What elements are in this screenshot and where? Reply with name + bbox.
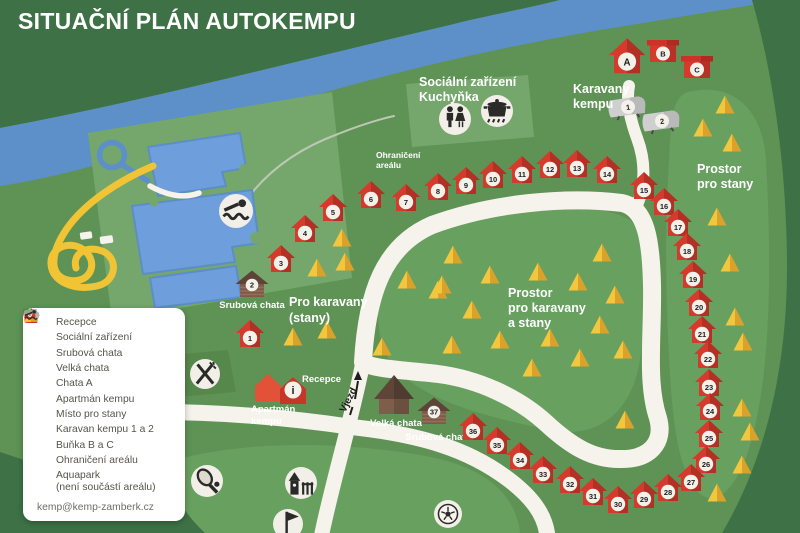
karavany-label-line2: kempu [573, 97, 613, 111]
marker-text: 8 [436, 187, 440, 196]
legend-item: Velká chata [35, 363, 177, 375]
marker-text: 31 [589, 492, 597, 501]
prostor-stany-label-line1: Prostor [697, 162, 742, 176]
utensils-icon [190, 359, 220, 389]
legend-item: Karavan kempu 1 a 2 [35, 424, 177, 436]
legend-item-label: Místo pro stany [56, 409, 126, 421]
marker-text: 15 [640, 186, 648, 195]
pro-karavany-label-line1: Pro karavany [289, 295, 368, 309]
legend-items: RecepceSociální zařízeníSrubová chataVel… [35, 317, 177, 495]
marker-text: 1 [248, 334, 252, 343]
marker-text: 19 [689, 275, 697, 284]
prostor-karavany-label-line3: a stany [508, 316, 551, 330]
marker-text: 23 [705, 383, 713, 392]
marker-text: 12 [546, 165, 554, 174]
legend-item: Sociální zařízení [35, 332, 177, 344]
marker-text: 22 [704, 355, 712, 364]
apartman-label-line1: Apartmán [251, 404, 296, 415]
prostor-karavany-label-line2: pro karavany [508, 301, 586, 315]
social-label-line1: Sociální zařízení [419, 75, 517, 89]
amenity-circle [439, 103, 471, 135]
legend-item: Buňka B a C [35, 440, 177, 452]
marker-text: Srubová chata [219, 300, 285, 311]
marker-text: 28 [664, 488, 672, 497]
social-label-line2: Kuchyňka [419, 90, 480, 104]
marker-text: A [623, 57, 630, 68]
marker-text: 14 [603, 170, 612, 179]
karavany-label-line1: Karavany [573, 82, 629, 96]
marker-text: 3 [279, 259, 283, 268]
marker-text: 6 [369, 195, 373, 204]
legend-item-label: Velká chata [56, 363, 109, 375]
soccer-icon [434, 500, 462, 528]
legend-item-label: Karavan kempu 1 a 2 [56, 424, 154, 436]
amenity-circle [219, 194, 253, 228]
marker-text: 2 [250, 281, 254, 290]
marker-text: 37 [430, 408, 438, 417]
marker-text: B [660, 49, 666, 58]
playground-icon [285, 467, 317, 499]
apartman-label-line2: kempu [251, 416, 282, 427]
legend-item: Chata A [35, 378, 177, 390]
prostor-stany-label-line2: pro stany [697, 177, 753, 191]
legend-item: Ohraničení areálu [35, 455, 177, 467]
legend-item-label: Buňka B a C [56, 440, 114, 452]
marker-text: 33 [539, 470, 547, 479]
marker-text: 5 [331, 208, 335, 217]
soccer-glyph [438, 504, 457, 523]
marker-text: 34 [516, 456, 525, 465]
legend-item: Srubová chata [35, 348, 177, 360]
legend-item: Místo pro stany [35, 409, 177, 421]
legend-item-label: Ohraničení areálu [56, 455, 138, 467]
marker-text: 13 [573, 164, 581, 173]
info-icon: i [291, 385, 294, 397]
marker-text: 9 [464, 181, 468, 190]
boundary-label-line1: Ohraničení [376, 150, 421, 160]
marker-text: 16 [660, 202, 668, 211]
legend-item-label: Srubová chata [56, 348, 122, 360]
recepce-label: Recepce [302, 374, 341, 385]
bunka-C: C [681, 56, 713, 78]
marker-text: Velká chata [370, 418, 422, 429]
marker-text: 27 [687, 478, 695, 487]
legend-item: Recepce [35, 317, 177, 329]
marker-text: 32 [566, 480, 574, 489]
marker-text: 17 [674, 223, 682, 232]
prostor-karavany-label-line1: Prostor [508, 286, 553, 300]
marker-text: 18 [683, 247, 691, 256]
tennis-icon [191, 465, 223, 497]
swimmer-icon [219, 194, 253, 228]
wc-icon [439, 103, 471, 135]
marker-text: 11 [518, 170, 526, 179]
legend-email: kemp@kemp-zamberk.cz [35, 502, 177, 513]
pot-icon [481, 95, 513, 127]
marker-text: 35 [493, 441, 501, 450]
marker-text: 36 [469, 427, 477, 436]
legend-item: Aquapark(není součástí areálu) [35, 470, 177, 494]
marker-text: 29 [640, 495, 648, 504]
marker-text: 30 [614, 500, 622, 509]
marker-text: 24 [706, 407, 715, 416]
legend-item-label: Aquapark(není součástí areálu) [56, 470, 156, 494]
legend-item-label: Apartmán kempu [56, 394, 134, 406]
marker-text: C [694, 65, 700, 74]
marker-text: Srubová chata [405, 432, 471, 443]
marker-text: 26 [702, 460, 710, 469]
pro-karavany-label-line2: (stany) [289, 311, 330, 325]
campsite-plan: 2Srubová chata37Srubová chataVelká chata… [0, 0, 800, 533]
page-title: SITUAČNÍ PLÁN AUTOKEMPU [18, 8, 356, 35]
legend-item-label: Sociální zařízení [56, 332, 132, 344]
marker-text: 10 [489, 175, 497, 184]
marker-text: 7 [404, 198, 408, 207]
legend-item-sublabel: (není součástí areálu) [56, 482, 156, 494]
legend-panel: RecepceSociální zařízeníSrubová chataVel… [23, 308, 185, 521]
bunka-B: B [647, 40, 679, 62]
legend-item-label: Chata A [56, 378, 93, 390]
boundary-label-line2: areálu [376, 160, 401, 170]
marker-text: 21 [698, 330, 706, 339]
marker-text: 20 [695, 303, 703, 312]
legend-item: Apartmán kempu [35, 394, 177, 406]
legend-item-label: Recepce [56, 317, 97, 329]
marker-text: 25 [705, 434, 713, 443]
